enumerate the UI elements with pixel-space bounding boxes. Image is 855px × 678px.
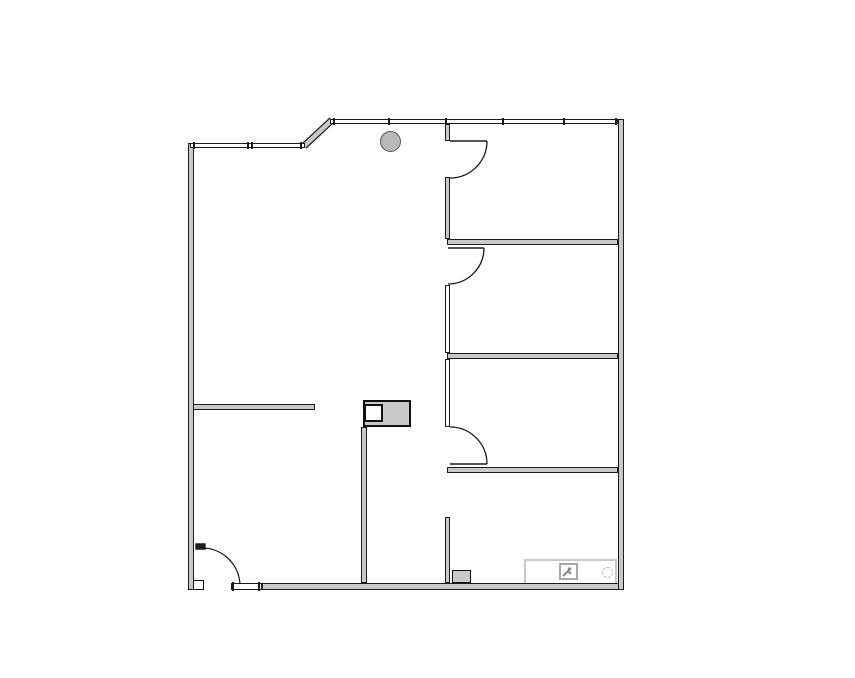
door-room2-swing-arc: [448, 248, 484, 284]
corridor-wall-mid-upper: [445, 285, 450, 353]
partition-wall-room3-room4: [447, 467, 618, 473]
door-entry-leaf: [196, 544, 205, 549]
door-jamb-post: [193, 580, 204, 590]
corridor-wall-upper: [445, 177, 450, 239]
broken-image-icon: [559, 563, 578, 580]
door-room3-swing-arc: [450, 427, 487, 464]
structural-column: [380, 131, 401, 152]
window-wall-top-mullion-tick: [388, 118, 390, 125]
exterior-wall-right: [618, 119, 624, 590]
exterior-wall-left: [188, 143, 194, 590]
window-wall-top-mullion-tick: [502, 118, 504, 125]
interior-wall-center-vertical: [361, 427, 367, 583]
door-room1-swing-arc: [450, 141, 487, 178]
corridor-wall-stub-top: [445, 124, 450, 141]
door-entry-swing-arc: [202, 548, 240, 586]
exterior-wall-bottom: [262, 583, 624, 590]
window-wall-top-mullion-tick: [615, 118, 617, 125]
dashed-circle-icon: [602, 567, 613, 578]
corridor-wall-mid-lower: [445, 359, 450, 427]
window-bottom-sidelite-mullion-tick: [258, 582, 260, 591]
corridor-wall-stub-bottom: [445, 517, 450, 583]
window-wall-top-left-mullion-tick: [247, 142, 249, 149]
equipment-box-inner: [364, 404, 383, 422]
window-wall-top: [330, 119, 618, 124]
window-wall-diagonal: [304, 120, 332, 146]
window-wall-top-mullion-tick: [333, 118, 335, 125]
partition-wall-room2-room3: [447, 353, 618, 359]
window-wall-top-left-mullion-tick: [193, 142, 195, 149]
window-wall-top-mullion-tick: [563, 118, 565, 125]
floor-plan-canvas: [0, 0, 855, 678]
window-wall-top-mullion-tick: [445, 118, 447, 125]
watermark-placeholder: [524, 559, 617, 585]
interior-wall-left-room: [193, 404, 315, 410]
cabinet-fixture: [452, 570, 471, 583]
partition-wall-room1-room2: [447, 239, 618, 245]
window-wall-top-left-mullion-tick: [300, 142, 302, 149]
window-wall-top-left-mullion-tick: [251, 142, 253, 149]
window-wall-diagonal: [304, 120, 332, 146]
window-bottom-sidelite-mullion-tick: [232, 582, 234, 591]
door-and-diagonal-overlay: [0, 0, 855, 678]
